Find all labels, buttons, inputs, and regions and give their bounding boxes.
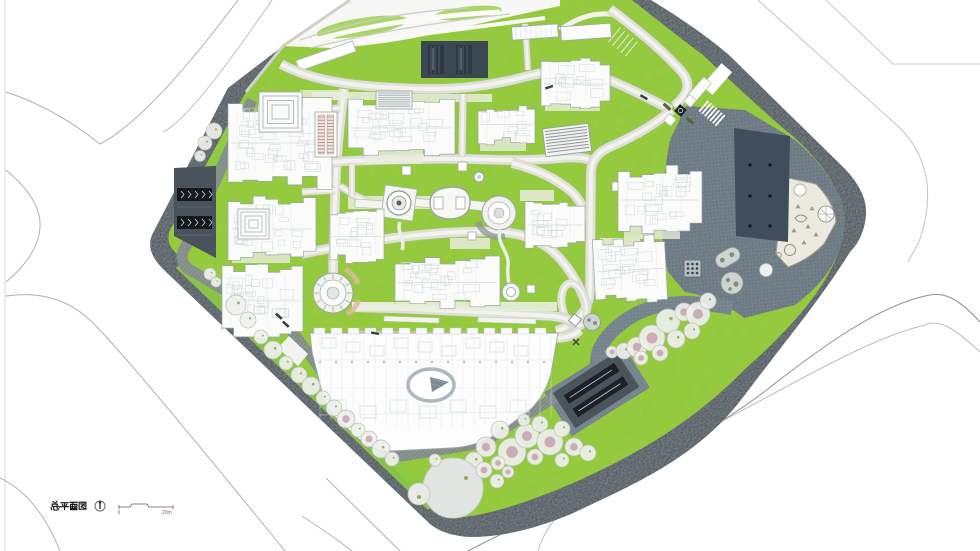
svg-text:0: 0: [118, 510, 121, 516]
svg-text:20m: 20m: [162, 510, 172, 516]
